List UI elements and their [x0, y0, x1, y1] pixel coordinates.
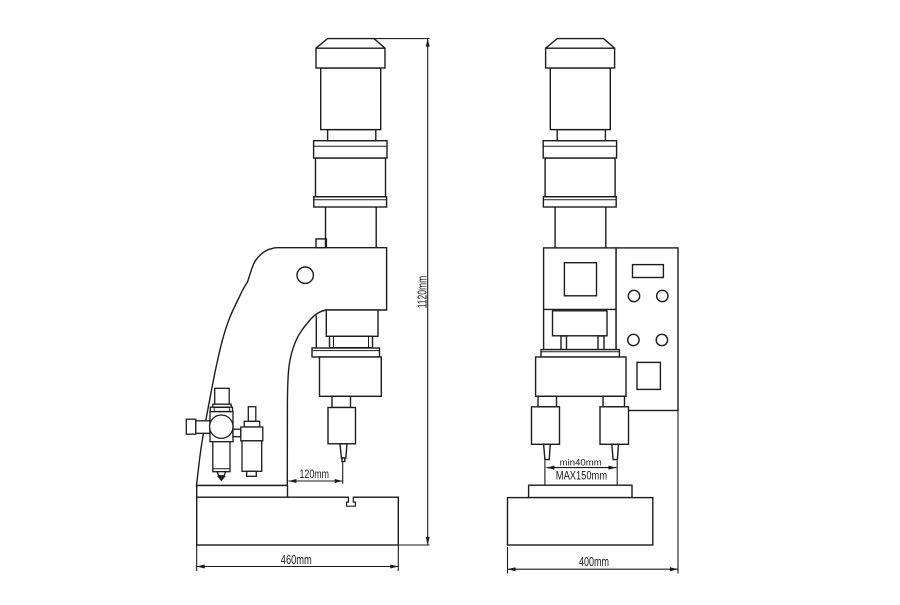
svg-text:min40mm: min40mm	[560, 458, 602, 469]
svg-text:460mm: 460mm	[281, 553, 312, 567]
svg-text:400mm: 400mm	[579, 555, 609, 569]
svg-text:MAX150mm: MAX150mm	[556, 471, 607, 483]
svg-text:1120mm: 1120mm	[415, 276, 429, 309]
svg-text:120mm: 120mm	[300, 467, 330, 481]
